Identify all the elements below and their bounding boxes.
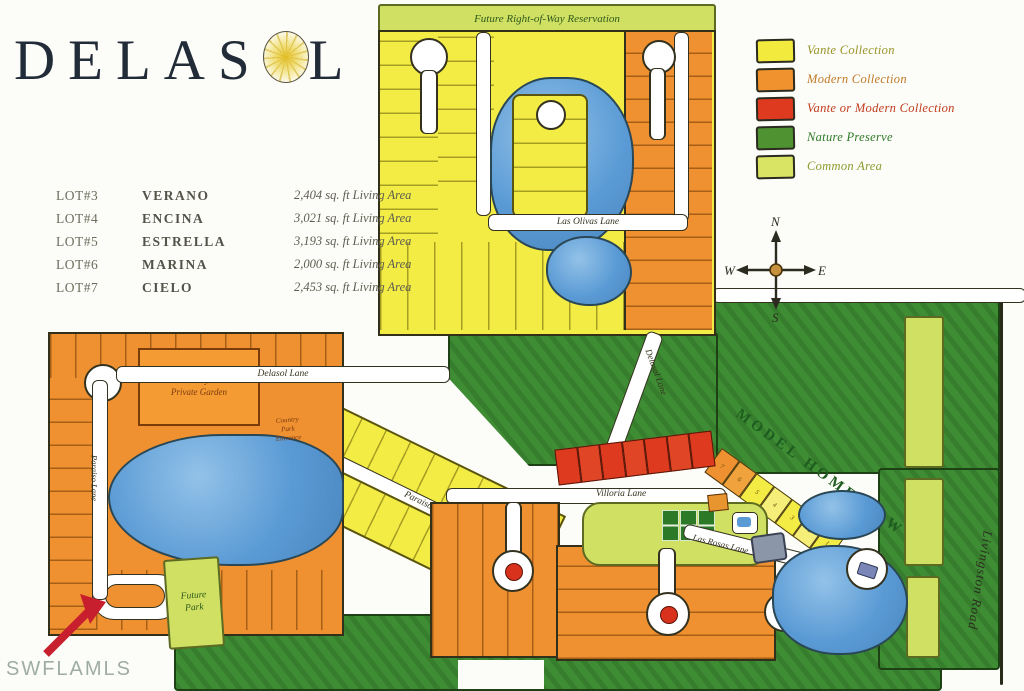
legend-swatch-common-area: [756, 154, 795, 179]
lot-model-name: VERANO: [142, 188, 294, 204]
tennis-court-icon: [662, 510, 679, 541]
lake-top-lower: [546, 236, 632, 306]
legend-item-nature-preserve: Nature Preserve: [756, 127, 955, 148]
pond-southeast: [798, 490, 886, 540]
lot-model-name: ESTRELLA: [142, 234, 294, 250]
orange-lot-column: [624, 32, 712, 330]
villoria-lane-label: Villoria Lane: [596, 490, 646, 500]
compass-west-label: W: [724, 263, 735, 279]
legend-swatch-vante: [756, 38, 795, 63]
cul-de-sac-stem: [505, 502, 522, 556]
map-region-top-neighborhood: Las Olivas Lane: [378, 30, 716, 336]
compass-north-label: N: [771, 214, 780, 230]
road-las-olivas: Las Olivas Lane: [488, 214, 688, 231]
red-lot: [689, 431, 716, 469]
lot-model-name: MARINA: [142, 257, 294, 273]
legend: Vante Collection Modern Collection Vante…: [756, 40, 955, 185]
lot-area: 2,453 sq. ft Living Area: [294, 280, 411, 296]
lot-number: LOT#7: [56, 280, 142, 296]
pool-water: [737, 517, 751, 527]
lot-area: 3,021 sq. ft Living Area: [294, 211, 411, 227]
cul-de-sac-island: [536, 100, 566, 130]
lot-number: LOT#5: [56, 234, 142, 250]
compass-arrows: [728, 222, 824, 318]
entry-garden-label-line2: Private Garden: [171, 387, 227, 399]
future-right-of-way-label: Future Right-of-Way Reservation: [474, 14, 620, 25]
entry-private-garden: Entry Private Garden: [138, 348, 260, 426]
cul-de-sac-island-red: [660, 606, 678, 624]
lot-area: 2,000 sq. ft Living Area: [294, 257, 411, 273]
clubhouse-icon: [707, 493, 729, 512]
lot-number: LOT#4: [56, 211, 142, 227]
legend-label: Modern Collection: [807, 72, 907, 87]
paraiso-lane-label-vertical: Paraiso Lane: [90, 455, 99, 501]
legend-item-vante: Vante Collection: [756, 40, 955, 61]
watermark: SWFLAMLS: [6, 658, 132, 681]
legend-label: Common Area: [807, 159, 882, 174]
sun-icon: [263, 31, 309, 83]
legend-item-vante-or-modern: Vante or Modern Collection: [756, 98, 955, 119]
livingston-median-3: [906, 576, 940, 658]
future-park-label-line2: Park: [185, 602, 204, 615]
lake-southeast: [772, 545, 908, 655]
legend-label: Nature Preserve: [807, 130, 893, 145]
delasol-site-map: Future Right-of-Way Reservation Las Oliv…: [0, 0, 1024, 689]
country-park-line3: Entrance: [276, 433, 302, 444]
country-park-entrance-label: Country Park Entrance: [255, 414, 321, 446]
road-vertical-top-right: [674, 32, 689, 222]
legend-item-common-area: Common Area: [756, 156, 955, 177]
legend-swatch-nature-preserve: [756, 125, 795, 150]
lot-table: LOT#3 VERANO 2,404 sq. ft Living Area LO…: [56, 188, 411, 296]
legend-item-modern: Modern Collection: [756, 69, 955, 90]
legend-swatch-vante-or-modern: [756, 96, 795, 121]
car-icon: [856, 561, 878, 579]
livingston-road-edge-line: [1000, 295, 1003, 685]
lot-model-name: ENCINA: [142, 211, 294, 227]
legend-swatch-modern: [756, 67, 795, 92]
future-park-area: Future Park: [163, 556, 225, 650]
cul-de-sac-island-red: [505, 563, 523, 581]
lot-number: LOT#6: [56, 257, 142, 273]
cul-de-sac-south-2: [646, 592, 690, 636]
compass-rose: N S W E: [728, 222, 824, 318]
title-text-post: L: [309, 29, 357, 92]
lot-number: LOT#3: [56, 188, 142, 204]
compass-south-label: S: [772, 310, 779, 326]
legend-label: Vante or Modern Collection: [807, 101, 955, 116]
lot-area: 3,193 sq. ft Living Area: [294, 234, 411, 250]
page-title: DELASL: [14, 28, 357, 93]
delasol-lane-label-west: Delasol Lane: [258, 370, 309, 380]
map-white-notch: [458, 660, 544, 689]
red-pointer-arrow: [38, 586, 118, 660]
cul-de-sac-car: [846, 548, 888, 590]
livingston-median-1: [904, 316, 944, 468]
cul-de-sac-south-1: [492, 550, 534, 592]
road-delasol-west: Delasol Lane: [116, 366, 450, 383]
map-region-nature-preserve-east: [714, 298, 1000, 474]
pool-icon: [732, 512, 758, 534]
livingston-median-2: [904, 478, 944, 566]
las-olivas-lane-label: Las Olivas Lane: [557, 218, 619, 228]
yellow-island-lots: [512, 94, 588, 218]
cul-de-sac-stem: [649, 68, 666, 140]
compass-east-label: E: [818, 263, 826, 279]
cul-de-sac-stem: [420, 70, 438, 134]
building-icon-gray: [750, 532, 788, 564]
lake-west: [108, 434, 344, 566]
road-vertical-top-left: [476, 32, 491, 216]
lot-area: 2,404 sq. ft Living Area: [294, 188, 411, 204]
title-text-pre: DELAS: [14, 29, 263, 92]
legend-label: Vante Collection: [807, 43, 895, 58]
lot-model-name: CIELO: [142, 280, 294, 296]
